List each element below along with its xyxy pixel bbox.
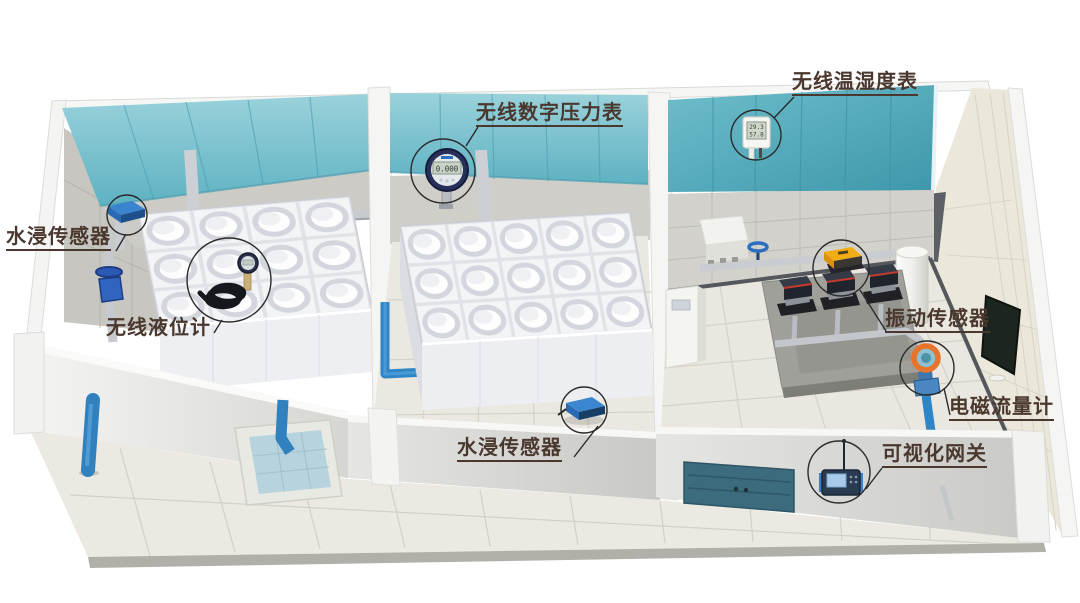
label-pressure-gauge: 无线数字压力表	[476, 101, 623, 127]
middle-room	[370, 93, 656, 470]
label-water-leak-sensor-left: 水浸传感器	[6, 225, 111, 251]
label-temp-humidity: 无线温湿度表	[792, 70, 918, 96]
pump-room-illustration: 0.000 29.3 57.8 水浸传感器 无线液位计 无线数字压力表 无线温湿…	[0, 0, 1080, 603]
left-front-pillar	[14, 332, 44, 434]
left-outer-edge	[26, 100, 66, 345]
label-flow-meter: 电磁流量计	[949, 395, 1054, 421]
control-cabinet	[666, 286, 706, 368]
temperature-display: 29.3	[749, 124, 764, 131]
label-gateway: 可视化网关	[882, 442, 987, 468]
label-vibration-sensor: 振动传感器	[885, 307, 990, 333]
label-level-gauge: 无线液位计	[106, 316, 211, 338]
wall-lamp	[989, 375, 1005, 381]
right-front-pillar	[1012, 430, 1050, 542]
left-water-tank	[138, 196, 372, 392]
middle-front-pillar	[368, 408, 400, 486]
middle-water-tank	[400, 212, 652, 410]
humidity-display: 57.8	[749, 132, 764, 139]
pressure-display: 0.000	[436, 165, 459, 174]
pump-room-scene: 0.000 29.3 57.8	[0, 0, 1080, 603]
label-water-leak-sensor-floor: 水浸传感器	[457, 436, 562, 462]
front-door	[684, 462, 794, 512]
pedestal-box	[700, 216, 748, 266]
